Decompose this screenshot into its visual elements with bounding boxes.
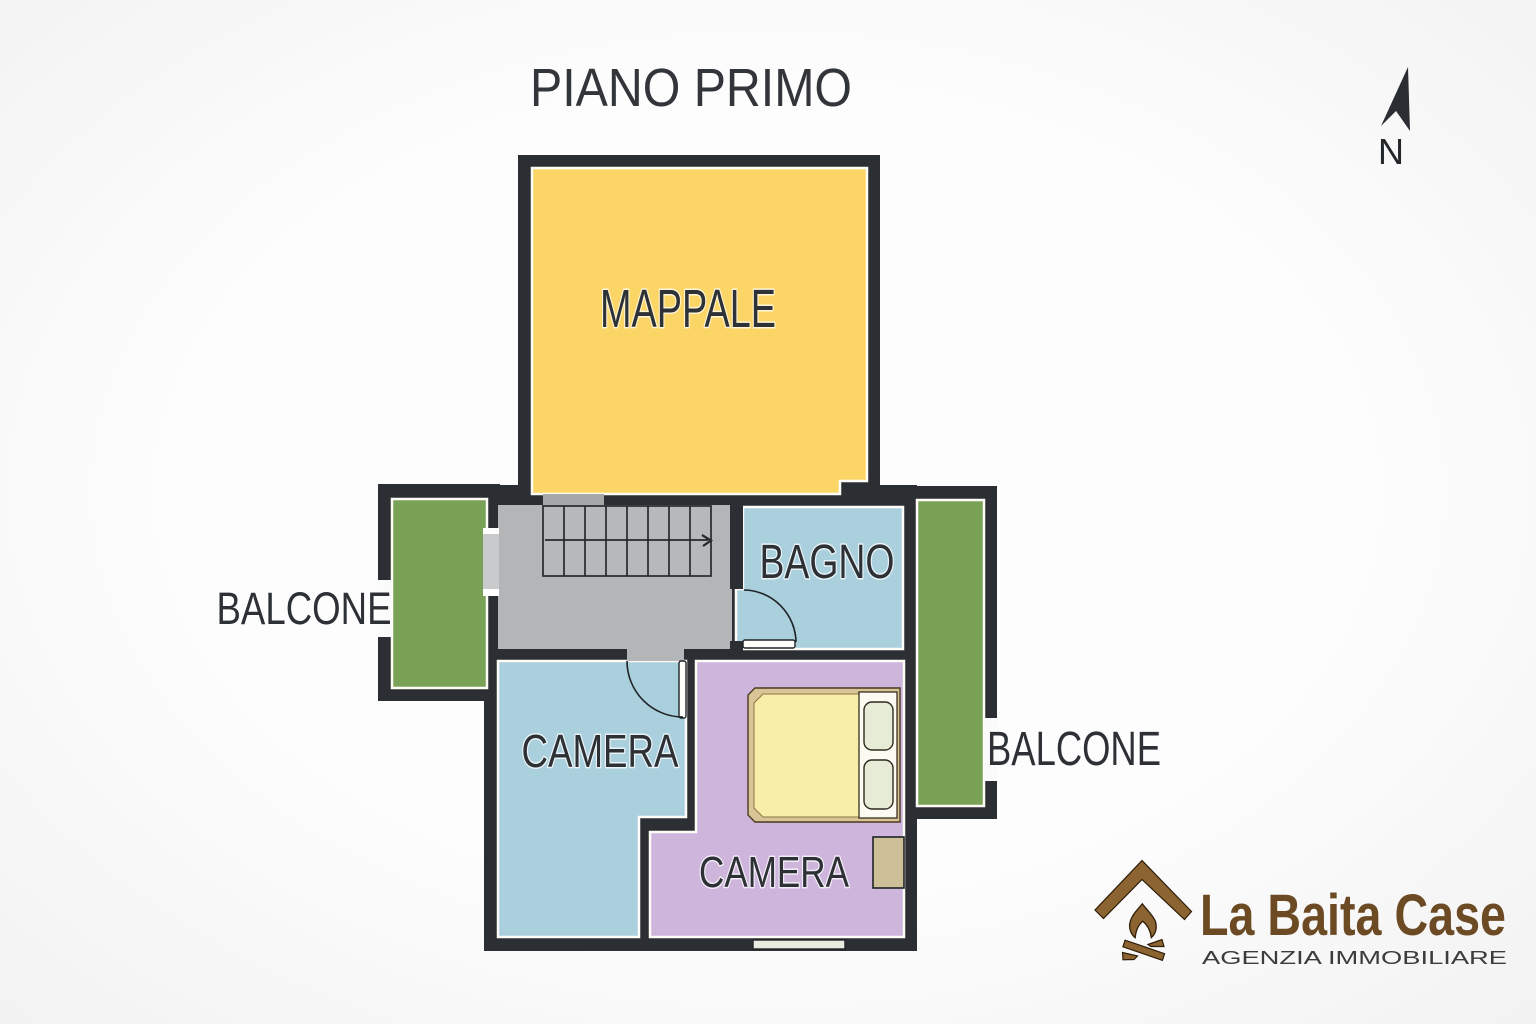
svg-text:CAMERA: CAMERA [522,725,679,777]
svg-text:BALCONE: BALCONE [217,583,392,634]
svg-text:AGENZIA IMMOBILIARE: AGENZIA IMMOBILIARE [1202,948,1507,968]
svg-text:BALCONE: BALCONE [987,723,1161,776]
svg-text:N: N [1378,131,1404,172]
svg-text:La Baita Case: La Baita Case [1200,883,1506,948]
svg-text:CAMERA: CAMERA [699,848,850,897]
svg-text:BAGNO: BAGNO [760,536,895,589]
svg-text:PIANO PRIMO: PIANO PRIMO [530,58,852,118]
svg-text:MAPPALE: MAPPALE [600,279,776,339]
